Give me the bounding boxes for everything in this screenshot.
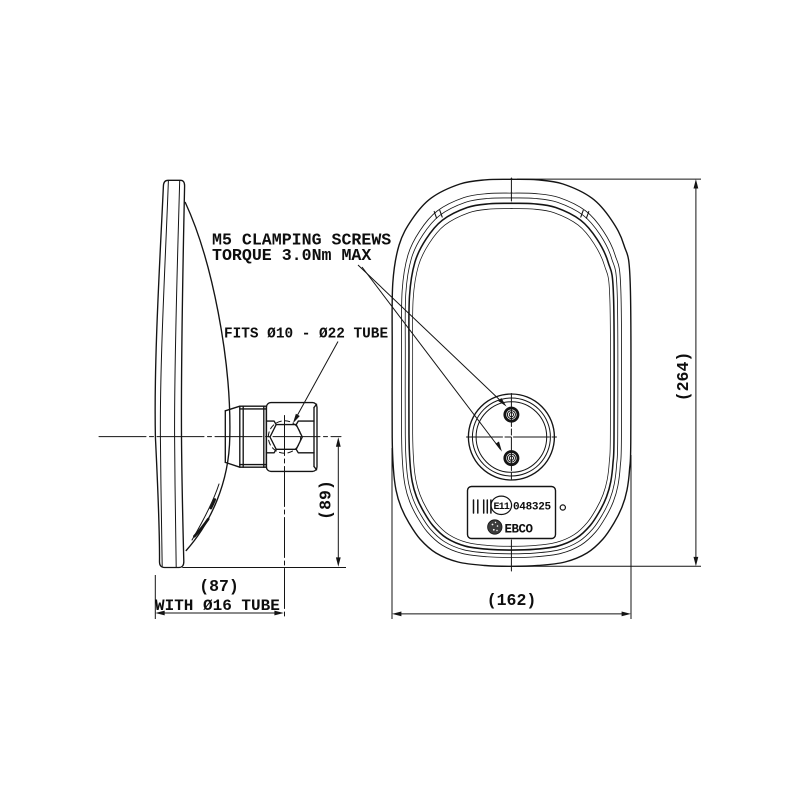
svg-text:(89): (89): [317, 480, 336, 520]
svg-text:WITH Ø16 TUBE: WITH Ø16 TUBE: [155, 597, 280, 615]
svg-text:E11: E11: [493, 502, 509, 513]
svg-text:(162): (162): [487, 591, 537, 610]
svg-text:(87): (87): [199, 577, 239, 596]
svg-text:(264): (264): [674, 352, 693, 402]
svg-text:FITS Ø10 - Ø22 TUBE: FITS Ø10 - Ø22 TUBE: [224, 327, 388, 343]
svg-text:EBCO: EBCO: [505, 523, 534, 537]
svg-text:048325: 048325: [513, 501, 552, 513]
svg-text:TORQUE 3.0Nm MAX: TORQUE 3.0Nm MAX: [212, 246, 371, 265]
